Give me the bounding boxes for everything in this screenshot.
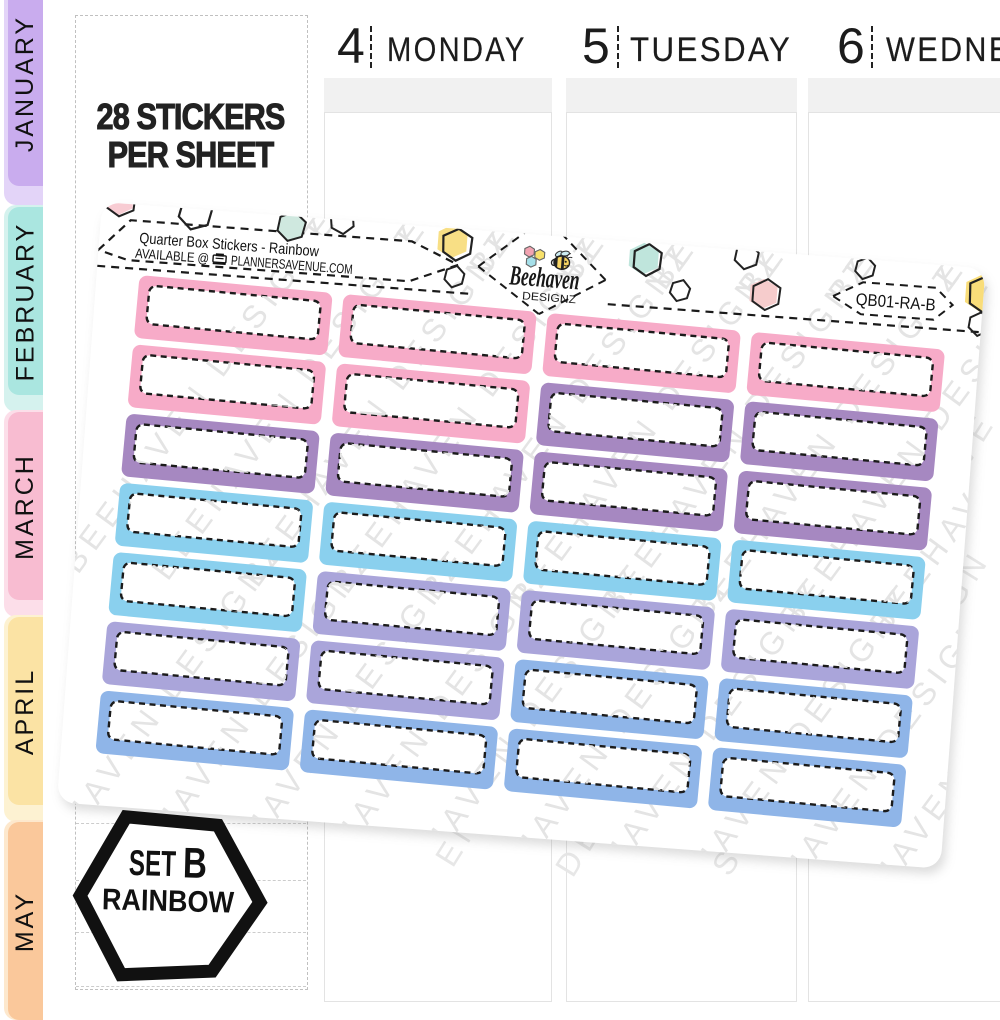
svg-text:SET: SET bbox=[128, 842, 176, 884]
svg-text:RAINBOW: RAINBOW bbox=[102, 883, 235, 919]
svg-text:B: B bbox=[182, 839, 207, 888]
